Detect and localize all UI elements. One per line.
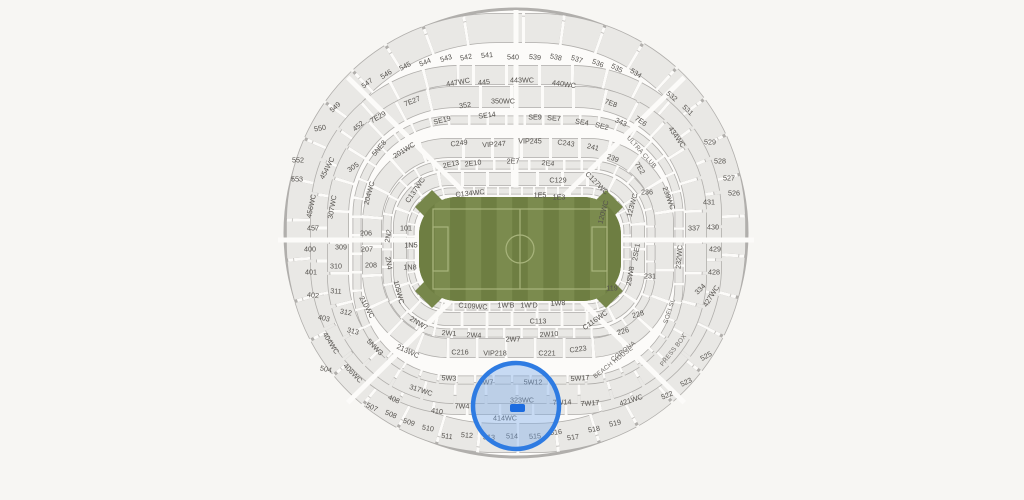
section-label[interactable]: 527 — [723, 174, 735, 183]
section-label[interactable]: C221 — [538, 349, 555, 358]
section-label[interactable]: 445 — [478, 77, 491, 87]
section-label[interactable]: 119 — [606, 284, 617, 293]
section-label[interactable]: 430 — [707, 223, 719, 232]
section-label[interactable]: 526 — [728, 189, 740, 198]
section-label[interactable]: 337 — [688, 224, 700, 233]
section-label[interactable]: 2W4 — [466, 330, 481, 340]
section-label[interactable]: 443WC — [510, 76, 534, 85]
section-label[interactable]: 517 — [566, 432, 579, 443]
field-stripe — [543, 197, 559, 301]
section-label[interactable]: SE9 — [528, 113, 542, 122]
field-stripe — [497, 197, 513, 301]
section-label[interactable]: 539 — [529, 52, 542, 62]
field-stripe — [450, 197, 466, 301]
section-label[interactable]: 5W3 — [441, 373, 456, 383]
section-label[interactable]: 1W'B — [498, 301, 515, 310]
section-label[interactable]: 2W1 — [441, 328, 456, 338]
section-label[interactable]: 541 — [481, 50, 494, 60]
section-label[interactable]: 309 — [335, 243, 347, 252]
section-label[interactable]: 431 — [703, 198, 715, 207]
section-label[interactable]: VIP218 — [483, 349, 507, 358]
section-label[interactable]: 402 — [307, 290, 320, 300]
stadium-map-svg: 5405395385375365355345325315295285275265… — [0, 0, 1024, 500]
field-stripe — [528, 197, 544, 301]
section-label[interactable]: SE7 — [547, 113, 561, 123]
section-label[interactable]: 1W'D — [520, 301, 537, 310]
section-label[interactable]: 528 — [714, 157, 726, 166]
field-stripe — [574, 197, 590, 301]
section-label[interactable]: 1W8 — [550, 298, 565, 308]
section-label[interactable]: 529 — [704, 138, 716, 147]
section-label[interactable]: 5W17 — [570, 373, 589, 383]
section-label[interactable]: 1E3 — [553, 193, 566, 202]
section-label[interactable]: 457 — [307, 224, 319, 233]
section-label[interactable]: 7W4 — [455, 402, 470, 411]
section-label[interactable]: VIP245 — [518, 137, 542, 146]
section-label[interactable]: 1N8 — [403, 263, 416, 272]
section-label[interactable]: 428 — [708, 268, 720, 277]
section-label[interactable]: 350WC — [491, 97, 515, 106]
section-label[interactable]: 552 — [292, 156, 304, 165]
section-label[interactable]: 1N5 — [404, 241, 417, 250]
section-label[interactable]: 207 — [361, 245, 373, 254]
section-label[interactable]: C129 — [549, 176, 566, 185]
section-label[interactable]: 310 — [330, 262, 342, 271]
section-label[interactable]: 101 — [400, 224, 412, 233]
field-stripe — [481, 197, 497, 301]
section-label[interactable]: 429 — [709, 245, 721, 254]
section-label[interactable]: 2W7 — [506, 335, 521, 344]
section-label[interactable]: 410 — [430, 406, 443, 417]
section-label[interactable]: 236 — [641, 188, 653, 197]
section-label[interactable]: 7W17 — [580, 398, 599, 408]
section-label[interactable]: 2E7 — [507, 157, 520, 166]
section-label[interactable]: VIP247 — [482, 139, 506, 150]
field-stripe — [466, 197, 482, 301]
seating-map: 5405395385375365355345325315295285275265… — [0, 0, 1024, 500]
selected-seats-marker[interactable] — [510, 404, 525, 412]
section-label[interactable]: C113 — [530, 317, 547, 326]
section-label[interactable]: C216 — [451, 348, 468, 357]
section-label[interactable]: 2W10 — [539, 329, 558, 339]
field-stripe — [559, 197, 575, 301]
section-label[interactable]: 540 — [507, 53, 519, 62]
section-label[interactable]: 511 — [441, 431, 454, 442]
section-label[interactable]: 1E5 — [534, 191, 547, 200]
section-label[interactable]: 311 — [330, 286, 342, 296]
section-label[interactable]: 400 — [304, 245, 316, 254]
section-label[interactable]: 231 — [644, 272, 656, 281]
section-label[interactable]: 2E4 — [541, 158, 555, 168]
section-label[interactable]: 553 — [291, 175, 303, 184]
section-label[interactable]: 401 — [305, 268, 317, 277]
section-label[interactable]: 352 — [458, 100, 471, 111]
section-label[interactable]: 208 — [365, 261, 377, 270]
section-label[interactable]: 512 — [461, 430, 474, 440]
section-label[interactable]: 206 — [360, 229, 372, 238]
field — [415, 190, 623, 308]
